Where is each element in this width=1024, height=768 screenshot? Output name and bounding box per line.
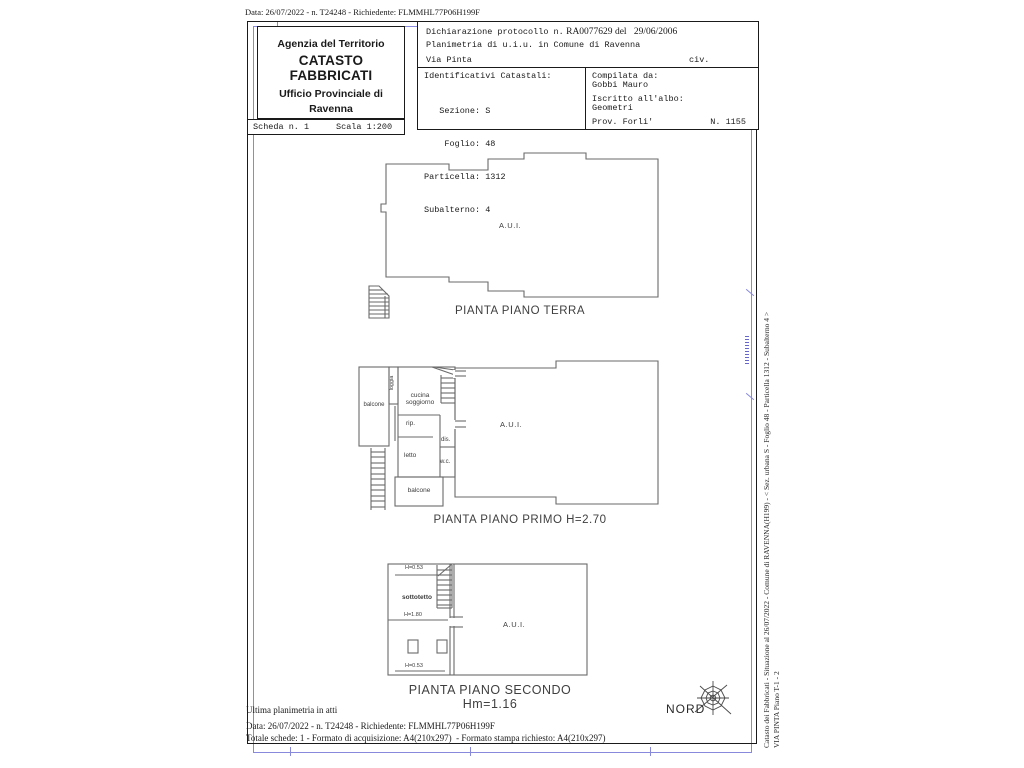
footer-data-line: Data: 26/07/2022 - n. T24248 - Richieden… — [246, 721, 495, 731]
top-meta-line: Data: 26/07/2022 - n. T24248 - Richieden… — [245, 7, 480, 17]
room-label-cucina: cucina — [400, 392, 440, 399]
identificativi-title: Identificativi Catastali: — [424, 71, 552, 81]
room-label-loggia: loggia — [389, 370, 397, 396]
north-label: NORD — [666, 702, 705, 716]
footer-totale: Totale schede: 1 - Formato di acquisizio… — [246, 733, 606, 743]
caption-piano-secondo: PIANTA PIANO SECONDO Hm=1.16 — [385, 683, 595, 711]
external-stair-primo — [371, 448, 385, 510]
room-label-sottotetto: sottotetto — [402, 594, 432, 601]
agency-line4: Ravenna — [258, 103, 404, 115]
identificativi-row-foglio: Foglio: 48 — [424, 139, 506, 150]
cadastral-document-page: Data: 26/07/2022 - n. T24248 - Richieden… — [0, 0, 1024, 768]
street-value: Via Pinta — [426, 55, 472, 65]
height-label-top: H=0.53 — [405, 565, 423, 571]
room-label-aui-terra: A.U.I. — [499, 221, 521, 230]
scheda-box: Scheda n. 1 Scala 1:200 — [247, 119, 405, 135]
declaration-box: Dichiarazione protocollo n. RA0077629 de… — [417, 21, 759, 69]
sidebar-address-line: VIA PINTA Piano T-1 - 2 — [772, 288, 782, 748]
prov-number: N. 1155 — [710, 117, 746, 127]
room-label-dis: dis. — [441, 437, 450, 443]
identificativi-box: Identificativi Catastali: Sezione: S Fog… — [417, 67, 587, 130]
registration-tick — [290, 747, 291, 756]
civ-label: civ. — [689, 55, 709, 65]
registration-tick — [650, 747, 651, 756]
registration-tick — [470, 747, 471, 756]
agency-line1: Agenzia del Territorio — [258, 38, 404, 50]
footer-ultima: Ultima planimetria in atti — [246, 705, 337, 715]
compilata-name: Gobbi Mauro — [592, 80, 648, 90]
external-stair-terra — [369, 286, 389, 318]
scale-label: Scala 1:200 — [336, 122, 392, 132]
plan-primo-drawing — [350, 358, 670, 513]
plan-terra-drawing — [360, 150, 670, 325]
height-label-bottom: H=0.53 — [405, 663, 423, 669]
protocol-del: del — [615, 27, 627, 37]
agency-line2: CATASTO FABBRICATI — [258, 53, 404, 83]
protocol-number: RA0077629 — [566, 27, 612, 37]
agency-box: Agenzia del Territorio CATASTO FABBRICAT… — [257, 26, 405, 119]
albo-value: Geometri — [592, 103, 633, 113]
room-label-rip: rip. — [406, 420, 415, 427]
prov-label: Prov. Forli' — [592, 117, 653, 127]
sidebar-situazione-line: Catasto dei Fabbricati - Situazione al 2… — [762, 288, 772, 748]
caption-piano-primo: PIANTA PIANO PRIMO H=2.70 — [420, 514, 620, 526]
room-label-aui-primo: A.U.I. — [500, 420, 522, 429]
room-label-letto: letto — [404, 452, 416, 459]
compilata-box: Compilata da: Gobbi Mauro Iscritto all'a… — [585, 67, 759, 130]
room-label-wc: w.c. — [440, 459, 450, 465]
agency-line3: Ufficio Provinciale di — [258, 88, 404, 100]
planimetria-line: Planimetria di u.i.u. in Comune di Raven… — [426, 40, 640, 50]
caption-piano-terra: PIANTA PIANO TERRA — [420, 305, 620, 317]
room-label-balcone-bottom: balcone — [400, 487, 438, 494]
room-label-soggiorno: soggiorno — [400, 399, 440, 406]
height-label-mid: H=1.80 — [404, 612, 422, 618]
identificativi-row-sezione: Sezione: S — [424, 106, 506, 117]
scheda-number: Scheda n. 1 — [253, 122, 309, 132]
protocol-date: 29/06/2006 — [634, 27, 677, 37]
protocol-label: Dichiarazione protocollo n. — [426, 27, 564, 37]
room-label-balcone-left: balcone — [360, 402, 388, 408]
room-label-aui-secondo: A.U.I. — [503, 620, 525, 629]
